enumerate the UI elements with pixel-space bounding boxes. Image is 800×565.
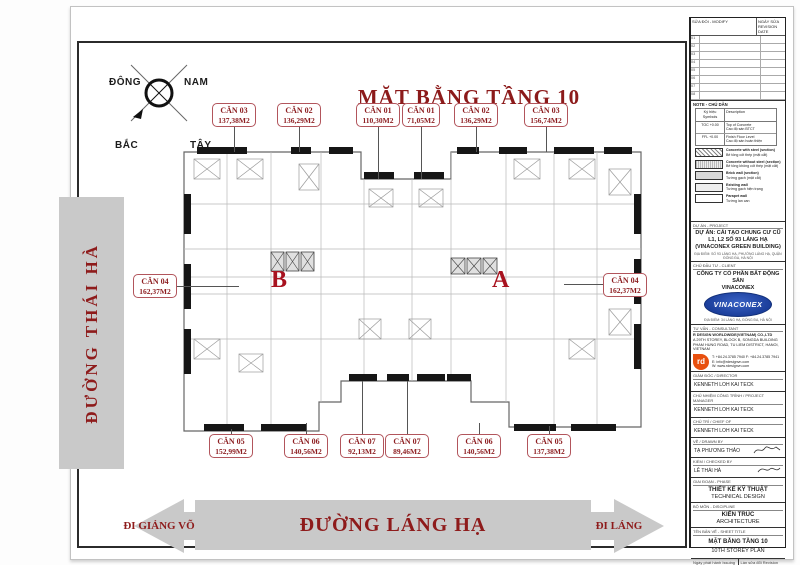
compass-icon xyxy=(121,55,197,131)
leader-line xyxy=(476,127,477,152)
road-direction-lang: ĐI LÁNG xyxy=(589,520,649,532)
project-section: DỰ ÁN - PROJECT DỰ ÁN: CẢI TẠO CHUNG CƯ … xyxy=(691,222,785,263)
sheet-title-line1: MẶT BẰNG TẦNG 10 xyxy=(693,537,783,549)
unit-label-can05-bottom-left: CĂN 05152,99M2 xyxy=(209,434,253,458)
compass-label-south: NAM xyxy=(184,77,208,88)
unit-label-can06-bottom-right: CĂN 06140,56M2 xyxy=(457,434,501,458)
discipline-section: BỘ MÔN - DISCIPLINE KIẾN TRÚC ARCHITECTU… xyxy=(691,503,785,528)
hatch-swatch-icon xyxy=(695,160,723,169)
client-name-line1: CÔNG TY CỔ PHẦN BẤT ĐỘNG SẢN xyxy=(693,271,783,285)
unit-label-can01-top-right: CĂN 0171,05M2 xyxy=(402,103,440,127)
issue-date-label: Ngày phát hành Issuing date xyxy=(693,560,736,565)
legend-item: Concrete without steel (section)Bê tông … xyxy=(695,160,781,169)
compass-label-east: ĐÔNG xyxy=(109,77,141,88)
leader-line xyxy=(362,381,363,435)
section-mark-a: A xyxy=(492,267,509,294)
project-name-line3: (VINACONEX GREEN BUILDING) xyxy=(693,244,783,251)
road-direction-giang-vo: ĐI GIẢNG VÕ xyxy=(104,520,214,532)
unit-label-can06-bottom-left: CĂN 06140,56M2 xyxy=(284,434,328,458)
discipline-line2: ARCHITECTURE xyxy=(693,519,783,526)
drawing-sheet-view: ĐÔNG NAM BẮC TÂY MẶT BẰNG TẦNG 10 xyxy=(0,0,800,565)
revision-header-date: NGÀY SỬA REVISION DATE xyxy=(757,18,785,35)
client-name-line2: VINACONEX xyxy=(693,285,783,292)
hatch-swatch-icon xyxy=(695,171,723,180)
role-director: GIÁM ĐỐC / DIRECTOR KENNETH LOH KAI TECK xyxy=(691,372,785,392)
unit-label-can05-bottom-right: CĂN 05137,38M2 xyxy=(527,434,571,458)
revision-row: 05 xyxy=(691,68,785,76)
consultant-address-1: A 29TH STOREY, BLOCK B, SONGDA BUILDING xyxy=(693,338,778,342)
section-mark-b: B xyxy=(271,267,287,294)
revision-row: 04 xyxy=(691,60,785,68)
revision-row: 02 xyxy=(691,44,785,52)
legend-item: Concrete with steel (section)Bê tông cốt… xyxy=(695,148,781,157)
leader-line xyxy=(177,286,239,287)
consultant-name: R DESIGN WORLDWIDE(VIETNAM) CO.,LTD xyxy=(693,333,772,337)
leader-line xyxy=(421,127,422,179)
street-name-thai-ha: ĐƯỜNG THÁI HÀ xyxy=(82,243,102,424)
revision-row: 03 xyxy=(691,52,785,60)
signature xyxy=(752,444,782,456)
leader-line xyxy=(407,381,408,435)
role-drawn-by: VẼ / DRAWN BY TẠ PHƯƠNG THẢO xyxy=(691,438,785,458)
legend-item: Parapet wallTường lan can xyxy=(695,194,781,203)
signature xyxy=(756,464,782,476)
client-label: CHỦ ĐẦU TƯ - CLIENT xyxy=(693,263,783,270)
revision-header-modify: SỬA ĐỔI - MODIFY xyxy=(691,18,757,35)
phase-line1: THIẾT KẾ KỸ THUẬT xyxy=(693,487,783,495)
project-name-line1: DỰ ÁN: CẢI TẠO CHUNG CƯ CŨ xyxy=(693,230,783,237)
legend-item: Existing wallTường gạch hiện trạng xyxy=(695,183,781,192)
unit-label-can03-top-left: CĂN 03137,38M2 xyxy=(212,103,256,127)
drawing-frame: ĐÔNG NAM BẮC TÂY MẶT BẰNG TẦNG 10 xyxy=(77,41,687,548)
legend-section: NOTE - CHÚ DẪN Ký hiệu Symbols Descripti… xyxy=(691,101,785,222)
client-address: ĐỊA ĐIỂM: 34 LÁNG HẠ, ĐỐNG ĐA, HÀ NỘI xyxy=(693,318,783,322)
client-section: CHỦ ĐẦU TƯ - CLIENT CÔNG TY CỔ PHẦN BẤT … xyxy=(691,262,785,324)
title-block: SỬA ĐỔI - MODIFY NGÀY SỬA REVISION DATE … xyxy=(689,17,786,548)
street-bar-thai-ha: ĐƯỜNG THÁI HÀ xyxy=(59,197,124,469)
street-name-lang-ha: ĐƯỜNG LÁNG HẠ xyxy=(300,514,487,537)
compass-rose: ĐÔNG NAM BẮC TÂY xyxy=(79,43,219,153)
unit-label-can02-top-right: CĂN 02136,29M2 xyxy=(454,103,498,127)
floor-plan-drawing xyxy=(169,139,659,459)
legend-row: TOC +0.00 Top of ConcreteCao độ sàn BTCT xyxy=(696,122,776,134)
sheet-title-section: TÊN BẢN VẼ - SHEET TITLE MẶT BẰNG TẦNG 1… xyxy=(691,528,785,559)
issue-revision-row: Ngày phát hành Issuing date 2020 Lần sửa… xyxy=(691,559,785,565)
role-project-manager: CHỦ NHIỆM CÔNG TRÌNH / PROJECT MANAGER K… xyxy=(691,392,785,417)
hatch-swatch-icon xyxy=(695,148,723,157)
project-address: ĐỊA ĐIỂM: SỐ 93 LÁNG HẠ, PHƯỜNG LÁNG HẠ,… xyxy=(693,252,783,261)
compass-label-north: BẮC xyxy=(115,140,138,151)
hatch-swatch-icon xyxy=(695,194,723,203)
rdesign-logo: rd xyxy=(693,354,709,370)
consultant-label: TƯ VẤN - CONSULTANT xyxy=(693,326,783,333)
consultant-address-2: PHAM HUNG ROAD, TU LIEM DISTRICT, HANOI,… xyxy=(693,343,779,352)
consultant-website: W: www.rdesignvn.com xyxy=(712,364,779,368)
consultant-section: TƯ VẤN - CONSULTANT R DESIGN WORLDWIDE(V… xyxy=(691,325,785,372)
hatch-swatch-icon xyxy=(695,183,723,192)
leader-line xyxy=(234,127,235,152)
role-checked-by: KIỂM / CHECKED BY LÊ THÁI HÀ xyxy=(691,458,785,478)
unit-label-can07-bottom-right: CĂN 0789,46M2 xyxy=(385,434,429,458)
phase-section: GIAI ĐOẠN - PHASE THIẾT KẾ KỸ THUẬT TECH… xyxy=(691,478,785,503)
phase-label: GIAI ĐOẠN - PHASE xyxy=(693,479,783,486)
vinaconex-logo: VINACONEX xyxy=(704,292,772,317)
sheet-title-label: TÊN BẢN VẼ - SHEET TITLE xyxy=(693,529,783,536)
legend-col-symbols: Ký hiệu Symbols xyxy=(696,109,725,120)
leader-line xyxy=(299,127,300,152)
phase-line2: TECHNICAL DESIGN xyxy=(693,494,783,501)
legend-header: NOTE - CHÚ DẪN xyxy=(693,102,783,107)
revision-table: SỬA ĐỔI - MODIFY NGÀY SỬA REVISION DATE … xyxy=(691,18,785,101)
leader-line xyxy=(378,127,379,179)
sheet-title-line2: 10TH STOREY PLAN xyxy=(693,548,783,557)
unit-label-can04-right: CĂN 04162,37M2 xyxy=(603,273,647,297)
unit-label-can04-left: CĂN 04162,37M2 xyxy=(133,274,177,298)
revision-row: 08 xyxy=(691,92,785,100)
revision-row: 06 xyxy=(691,76,785,84)
street-bar-lang-ha: ĐƯỜNG LÁNG HẠ xyxy=(195,500,591,550)
discipline-line1: KIẾN TRÚC xyxy=(693,512,783,520)
discipline-label: BỘ MÔN - DISCIPLINE xyxy=(693,504,783,511)
legend-col-description: Description xyxy=(725,109,776,120)
legend-row: FFL +0.00 Finish Floor LevelCao độ sàn h… xyxy=(696,134,776,145)
paper-sheet: ĐÔNG NAM BẮC TÂY MẶT BẰNG TẦNG 10 xyxy=(70,6,794,560)
project-name-line2: L1, L2 SỐ 93 LÁNG HẠ xyxy=(693,237,783,244)
leader-line xyxy=(546,127,547,152)
unit-label-can07-bottom-left: CĂN 0792,13M2 xyxy=(340,434,384,458)
unit-label-can02-top-left: CĂN 02136,29M2 xyxy=(277,103,321,127)
unit-label-can03-top-right: CĂN 03156,74M2 xyxy=(524,103,568,127)
legend-table: Ký hiệu Symbols Description TOC +0.00 To… xyxy=(695,108,777,145)
legend-item: Brick wall (section)Tường gạch (mặt cắt) xyxy=(695,171,781,180)
revision-code-label: Lần sửa đổi Revision code xyxy=(741,560,784,565)
revision-row: 07 xyxy=(691,84,785,92)
revision-row: 01 xyxy=(691,36,785,44)
leader-line xyxy=(564,284,604,285)
project-label: DỰ ÁN - PROJECT xyxy=(693,223,783,230)
unit-label-can01-top-left: CĂN 01110,30M2 xyxy=(356,103,400,127)
role-chief: CHỦ TRÌ / CHIEF OF KENNETH LOH KAI TECK xyxy=(691,418,785,438)
